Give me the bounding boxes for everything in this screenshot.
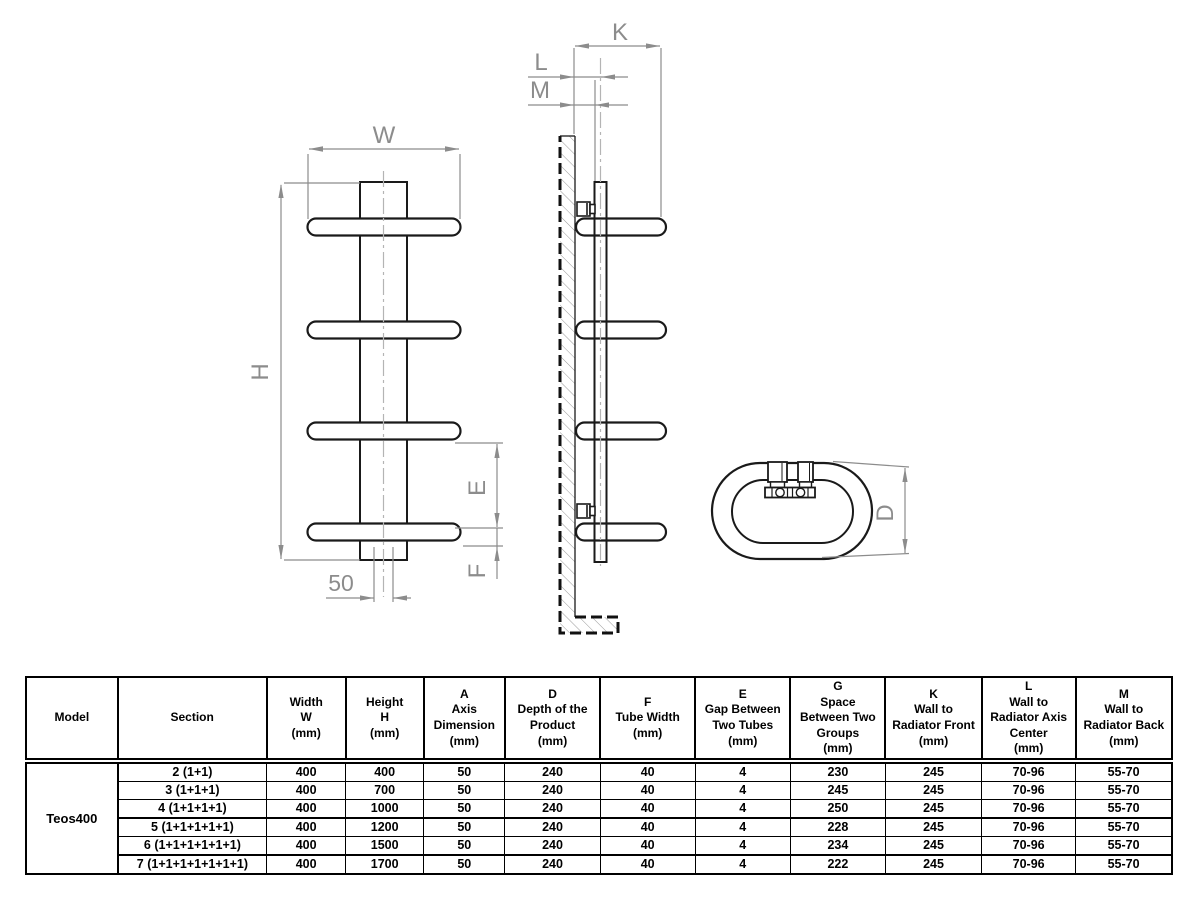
cell: 228 xyxy=(790,818,885,837)
header-width: Width W (mm) xyxy=(267,677,346,761)
cell: 234 xyxy=(790,836,885,855)
table-header-row: Model Section Width W (mm) Height H (mm)… xyxy=(26,677,1172,761)
dim-label-e: E xyxy=(464,480,491,496)
cell: 4 xyxy=(695,761,790,782)
cell: 245 xyxy=(885,818,981,837)
cell: 230 xyxy=(790,761,885,782)
dim-label-f: F xyxy=(464,564,491,579)
table-row: 7 (1+1+1+1+1+1+1) 400 1700 50 240 40 4 2… xyxy=(26,855,1172,874)
dim-label-h: H xyxy=(247,363,274,380)
cell: 245 xyxy=(885,855,981,874)
cell: 40 xyxy=(600,855,695,874)
cell: 245 xyxy=(885,799,981,818)
cell: 4 xyxy=(695,836,790,855)
side-tube xyxy=(576,423,666,440)
cell: 55-70 xyxy=(1076,781,1172,799)
cell: 3 (1+1+1) xyxy=(118,781,267,799)
header-wall-to-back: M Wall to Radiator Back (mm) xyxy=(1076,677,1172,761)
cell: 400 xyxy=(267,855,346,874)
table-row: 3 (1+1+1) 400 700 50 240 40 4 245 245 70… xyxy=(26,781,1172,799)
header-height: Height H (mm) xyxy=(346,677,424,761)
cell: 400 xyxy=(267,781,346,799)
cell: 4 (1+1+1+1) xyxy=(118,799,267,818)
cell: 70-96 xyxy=(982,761,1076,782)
dimension-k xyxy=(574,46,661,217)
cell: 240 xyxy=(505,799,600,818)
cell: 250 xyxy=(790,799,885,818)
header-axis-dimension: A Axis Dimension (mm) xyxy=(424,677,505,761)
table-row: 6 (1+1+1+1+1+1) 400 1500 50 240 40 4 234… xyxy=(26,836,1172,855)
cell: 245 xyxy=(885,761,981,782)
cell: 4 xyxy=(695,818,790,837)
cell: 400 xyxy=(267,799,346,818)
cell: 2 (1+1) xyxy=(118,761,267,782)
header-wall-to-front: K Wall to Radiator Front (mm) xyxy=(885,677,981,761)
top-view: D xyxy=(712,462,909,560)
cell: 240 xyxy=(505,855,600,874)
header-section: Section xyxy=(118,677,267,761)
dim-label-l: L xyxy=(534,49,547,76)
cell: 700 xyxy=(346,781,424,799)
cell: 70-96 xyxy=(982,855,1076,874)
model-name: Teos400 xyxy=(26,761,118,874)
side-tube xyxy=(576,322,666,339)
specification-table: Model Section Width W (mm) Height H (mm)… xyxy=(25,676,1173,875)
cell: 6 (1+1+1+1+1+1) xyxy=(118,836,267,855)
front-view: W H E F xyxy=(247,122,503,602)
cell: 70-96 xyxy=(982,836,1076,855)
dimension-h xyxy=(281,183,360,560)
header-space-between-groups: G Space Between Two Groups (mm) xyxy=(790,677,885,761)
cell: 55-70 xyxy=(1076,836,1172,855)
cell: 1500 xyxy=(346,836,424,855)
header-depth: D Depth of the Product (mm) xyxy=(505,677,600,761)
cell: 55-70 xyxy=(1076,818,1172,837)
cell: 240 xyxy=(505,761,600,782)
table-row: 4 (1+1+1+1) 400 1000 50 240 40 4 250 245… xyxy=(26,799,1172,818)
side-tube xyxy=(576,524,666,541)
cell: 40 xyxy=(600,818,695,837)
dim-label-w: W xyxy=(373,122,396,149)
header-wall-to-axis-center: L Wall to Radiator Axis Center (mm) xyxy=(982,677,1076,761)
cell: 70-96 xyxy=(982,781,1076,799)
cell: 1200 xyxy=(346,818,424,837)
cell: 55-70 xyxy=(1076,761,1172,782)
cell: 5 (1+1+1+1+1) xyxy=(118,818,267,837)
cell: 1000 xyxy=(346,799,424,818)
dim-label-50: 50 xyxy=(328,570,354,596)
cell: 70-96 xyxy=(982,818,1076,837)
cell: 4 xyxy=(695,799,790,818)
header-tube-width: F Tube Width (mm) xyxy=(600,677,695,761)
cell: 50 xyxy=(424,855,505,874)
dim-label-m: M xyxy=(530,77,550,104)
cell: 222 xyxy=(790,855,885,874)
dim-label-k: K xyxy=(612,19,628,46)
cell: 40 xyxy=(600,761,695,782)
cell: 7 (1+1+1+1+1+1+1) xyxy=(118,855,267,874)
cell: 50 xyxy=(424,818,505,837)
cell: 400 xyxy=(346,761,424,782)
wall-bracket xyxy=(577,202,595,216)
specification-table-container: Model Section Width W (mm) Height H (mm)… xyxy=(25,676,1173,875)
cell: 240 xyxy=(505,818,600,837)
cell: 50 xyxy=(424,836,505,855)
cell: 400 xyxy=(267,761,346,782)
cell: 1700 xyxy=(346,855,424,874)
wall-bracket xyxy=(577,504,595,518)
cell: 55-70 xyxy=(1076,855,1172,874)
table-row: Teos400 2 (1+1) 400 400 50 240 40 4 230 … xyxy=(26,761,1172,782)
table-row: 5 (1+1+1+1+1) 400 1200 50 240 40 4 228 2… xyxy=(26,818,1172,837)
header-gap-between-tubes: E Gap Between Two Tubes (mm) xyxy=(695,677,790,761)
cell: 4 xyxy=(695,781,790,799)
cell: 245 xyxy=(790,781,885,799)
radiator-technical-drawing: W H E F xyxy=(0,0,1200,662)
cell: 50 xyxy=(424,761,505,782)
cell: 245 xyxy=(885,781,981,799)
dim-label-d: D xyxy=(872,504,899,521)
cell: 50 xyxy=(424,781,505,799)
cell: 55-70 xyxy=(1076,799,1172,818)
cell: 70-96 xyxy=(982,799,1076,818)
cell: 50 xyxy=(424,799,505,818)
cell: 240 xyxy=(505,781,600,799)
header-model: Model xyxy=(26,677,118,761)
cell: 40 xyxy=(600,799,695,818)
cell: 40 xyxy=(600,836,695,855)
cell: 400 xyxy=(267,836,346,855)
cell: 240 xyxy=(505,836,600,855)
cell: 400 xyxy=(267,818,346,837)
side-tube xyxy=(576,219,666,236)
cell: 40 xyxy=(600,781,695,799)
cell: 245 xyxy=(885,836,981,855)
cell: 4 xyxy=(695,855,790,874)
side-view: K L M xyxy=(528,19,666,633)
